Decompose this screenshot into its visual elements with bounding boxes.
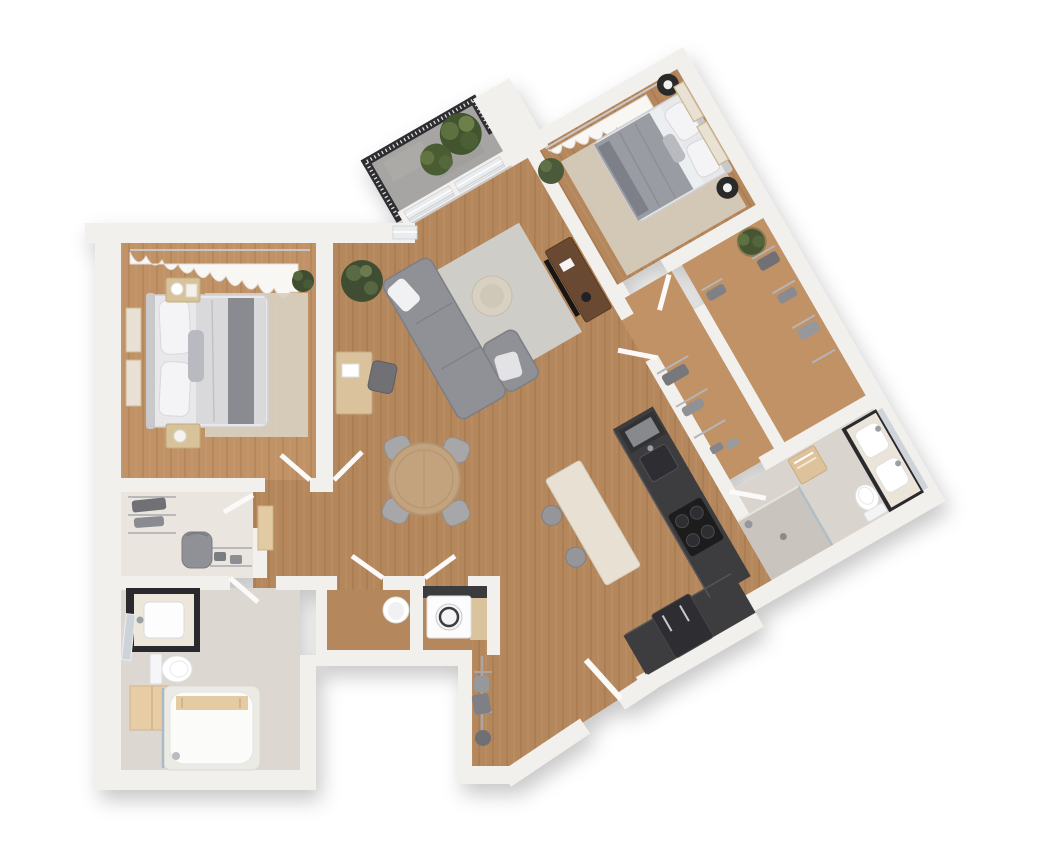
faucet bbox=[172, 752, 180, 760]
pillow bbox=[159, 299, 192, 354]
bed-runner bbox=[228, 298, 254, 424]
nightstand bbox=[166, 424, 200, 448]
headboard bbox=[146, 293, 155, 429]
hanging-item bbox=[474, 676, 489, 692]
shoes bbox=[230, 555, 242, 564]
accent-pillow bbox=[188, 330, 204, 382]
bedroom-window bbox=[393, 226, 417, 239]
vanity bbox=[126, 588, 200, 652]
wood-shelf bbox=[470, 598, 487, 640]
toilet bbox=[150, 654, 192, 684]
lounge-chair bbox=[182, 532, 212, 568]
papers bbox=[342, 364, 359, 377]
pillow bbox=[159, 361, 192, 416]
floor-plan-svg bbox=[0, 0, 1055, 844]
leaning-mirror bbox=[258, 506, 273, 550]
double-bed bbox=[146, 293, 268, 429]
shoes bbox=[214, 552, 226, 561]
hanging-clothes bbox=[134, 516, 165, 528]
potted-plant bbox=[292, 270, 314, 292]
potted-plant-living bbox=[341, 260, 383, 302]
wall-art bbox=[126, 308, 141, 352]
wall-art bbox=[126, 360, 141, 406]
nightstand bbox=[166, 278, 200, 302]
potted-plant-small bbox=[538, 158, 564, 184]
basket bbox=[475, 730, 491, 746]
bath-caddy bbox=[176, 696, 248, 710]
hanging-bag bbox=[471, 693, 491, 716]
bathtub bbox=[163, 686, 260, 770]
washing-machine bbox=[427, 596, 471, 638]
floor-plan-image bbox=[0, 0, 1055, 844]
dining-set bbox=[380, 433, 473, 529]
building bbox=[85, 0, 1055, 844]
desk bbox=[336, 352, 372, 414]
